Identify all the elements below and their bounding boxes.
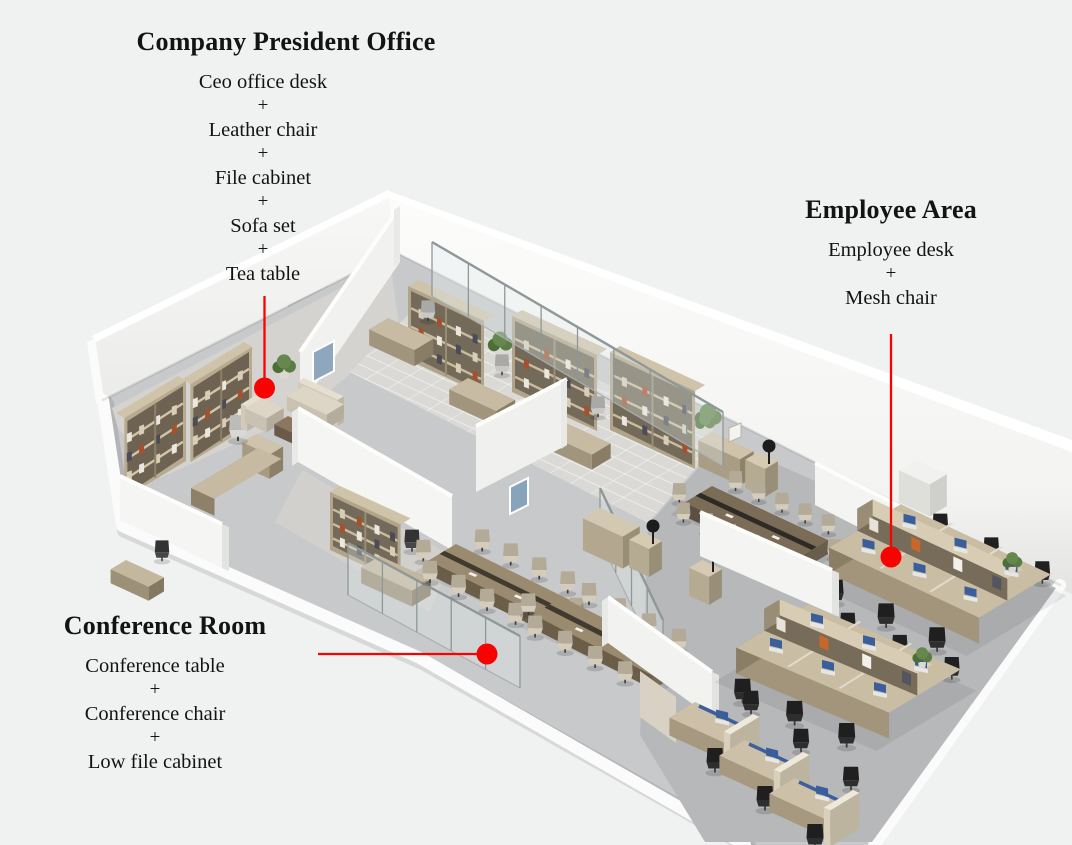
plus-separator: + bbox=[60, 94, 466, 118]
conference-item: Conference chair bbox=[12, 702, 298, 726]
mesh-chair bbox=[792, 729, 810, 756]
mesh-chair bbox=[842, 767, 860, 794]
office-desk bbox=[111, 560, 164, 601]
conference-item: Conference table bbox=[12, 654, 298, 678]
office-chair bbox=[154, 540, 170, 564]
mesh-chair bbox=[742, 691, 760, 718]
marker-dot-conference bbox=[477, 644, 498, 665]
plus-separator: + bbox=[12, 678, 298, 702]
office-chair bbox=[590, 396, 606, 420]
mesh-chair bbox=[806, 824, 825, 845]
marker-dot-president bbox=[254, 378, 275, 399]
callout-conference-room: Conference Room Conference table + Confe… bbox=[12, 610, 318, 774]
president-item: Ceo office desk bbox=[60, 70, 466, 94]
conference-item: Low file cabinet bbox=[12, 750, 298, 774]
president-item: Tea table bbox=[60, 262, 466, 286]
plus-separator: + bbox=[60, 238, 466, 262]
president-office-title: Company President Office bbox=[60, 26, 512, 57]
plus-separator: + bbox=[716, 262, 1066, 286]
president-item: Sofa set bbox=[60, 214, 466, 238]
plus-separator: + bbox=[12, 726, 298, 750]
conference-room-title: Conference Room bbox=[12, 610, 318, 641]
callout-president-office: Company President Office Ceo office desk… bbox=[60, 26, 512, 286]
plus-separator: + bbox=[60, 190, 466, 214]
floorplan-stage: Company President Office Ceo office desk… bbox=[0, 0, 1072, 845]
callout-employee-area: Employee Area Employee desk + Mesh chair bbox=[716, 194, 1066, 310]
employee-item: Mesh chair bbox=[716, 286, 1066, 310]
marker-dot-employee bbox=[881, 547, 902, 568]
president-item: File cabinet bbox=[60, 166, 466, 190]
office-chair bbox=[494, 354, 510, 378]
president-item: Leather chair bbox=[60, 118, 466, 142]
employee-item: Employee desk bbox=[716, 238, 1066, 262]
office-chair bbox=[420, 300, 436, 324]
employee-area-title: Employee Area bbox=[716, 194, 1066, 225]
plus-separator: + bbox=[60, 142, 466, 166]
